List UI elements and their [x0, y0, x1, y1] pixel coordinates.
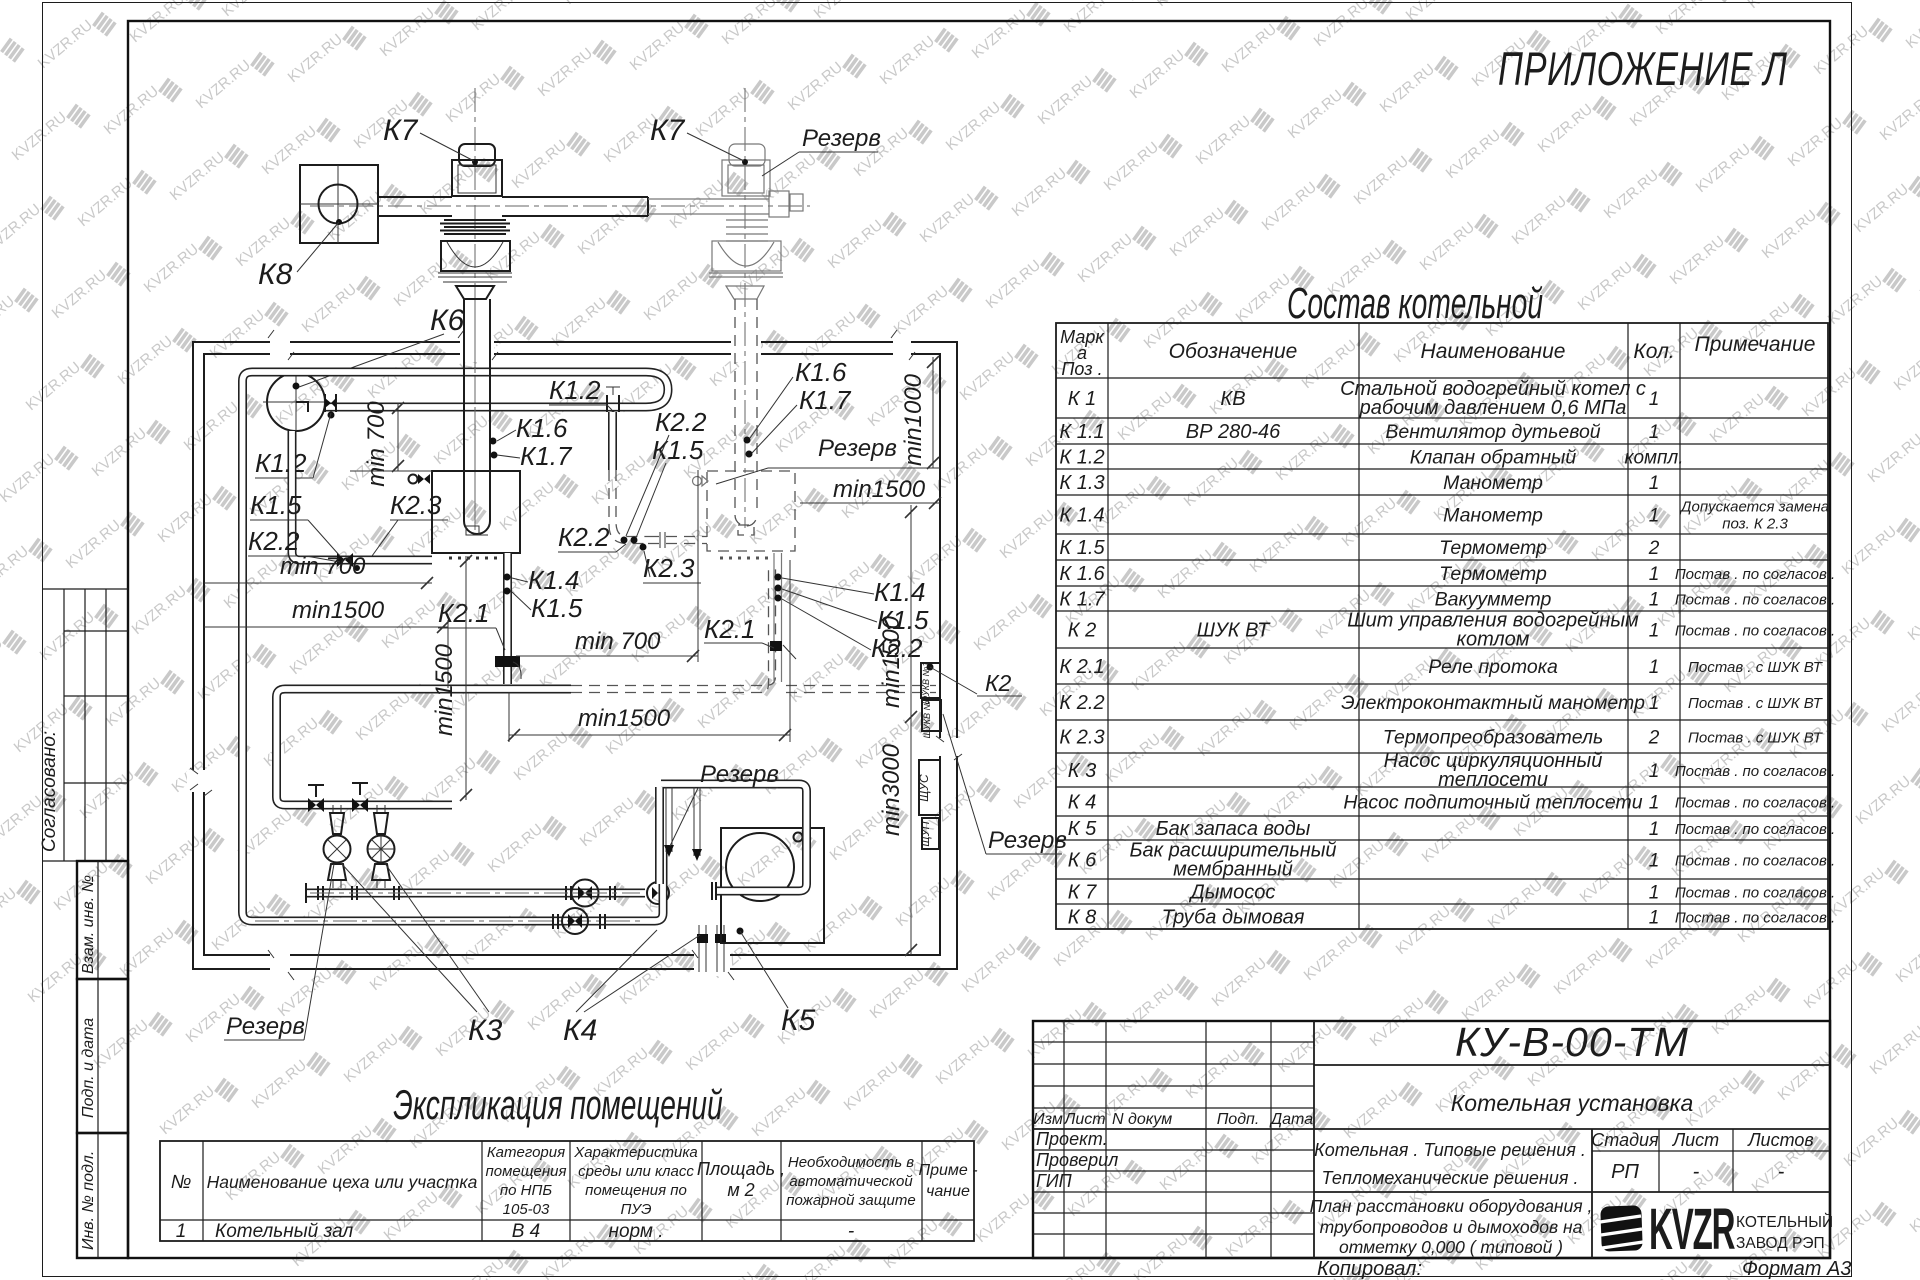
svg-text:1: 1 [1649, 422, 1660, 443]
svg-text:К 1.1: К 1.1 [1059, 421, 1104, 443]
svg-text:К 8: К 8 [1068, 907, 1096, 929]
svg-text:Экспликация помещений: Экспликация помещений [393, 1081, 723, 1128]
svg-text:К2.3: К2.3 [643, 553, 695, 583]
svg-text:min3000: min3000 [878, 743, 905, 836]
svg-text:Постав . по согласов .: Постав . по согласов . [1675, 885, 1835, 902]
svg-text:1: 1 [1649, 564, 1660, 585]
svg-text:Листов: Листов [1747, 1130, 1814, 1150]
svg-text:автоматической: автоматической [789, 1173, 913, 1190]
svg-text:Вентилятор дутьевой: Вентилятор дутьевой [1385, 421, 1600, 443]
svg-text:min1500: min1500 [292, 597, 385, 624]
svg-text:Постав . по согласов .: Постав . по согласов . [1675, 910, 1835, 927]
svg-text:ПРИЛОЖЕНИЕ Л: ПРИЛОЖЕНИЕ Л [1498, 43, 1788, 96]
svg-text:min1500: min1500 [878, 615, 905, 708]
svg-text:К4: К4 [563, 1014, 597, 1047]
svg-text:Подп.: Подп. [1217, 1111, 1260, 1128]
svg-text:К1.4: К1.4 [874, 577, 925, 607]
svg-text:Лист: Лист [1672, 1130, 1719, 1150]
svg-text:1: 1 [1649, 693, 1660, 714]
svg-text:Необходимость в: Необходимость в [788, 1154, 914, 1171]
svg-text:К6: К6 [430, 304, 465, 337]
svg-text:Вакуумметр: Вакуумметр [1435, 589, 1552, 611]
svg-text:ЩУС: ЩУС [917, 774, 931, 802]
svg-text:компл.: компл. [1624, 448, 1683, 469]
svg-text:теплосети: теплосети [1438, 769, 1548, 791]
svg-text:1: 1 [1649, 851, 1660, 872]
svg-text:чание: чание [926, 1183, 970, 1200]
svg-text:Резерв: Резерв [226, 1013, 305, 1040]
svg-text:Примечание: Примечание [1695, 333, 1816, 356]
svg-text:ПУЭ: ПУЭ [620, 1201, 651, 1218]
svg-text:К 7: К 7 [1068, 882, 1097, 904]
svg-text:-: - [848, 1221, 854, 1242]
svg-text:Состав котельной: Состав котельной [1287, 279, 1543, 328]
svg-text:К1.2: К1.2 [549, 375, 601, 405]
svg-text:К 1.7: К 1.7 [1059, 589, 1105, 611]
svg-text:Постав . с ШУК ВТ: Постав . с ШУК ВТ [1688, 659, 1824, 676]
svg-text:К1.6: К1.6 [795, 357, 847, 387]
svg-text:KVZR: KVZR [1649, 1197, 1735, 1262]
svg-text:Обозначение: Обозначение [1169, 340, 1298, 363]
svg-text:помещения: помещения [486, 1163, 567, 1180]
svg-text:ЗАВОД РЭП: ЗАВОД РЭП [1736, 1235, 1825, 1252]
svg-text:Характеристика: Характеристика [573, 1144, 698, 1161]
svg-text:Электроконтактный манометр: Электроконтактный манометр [1341, 692, 1645, 714]
svg-text:К 1.4: К 1.4 [1059, 505, 1104, 527]
svg-text:1: 1 [1649, 657, 1660, 678]
svg-text:поз. К 2.3: поз. К 2.3 [1722, 516, 1788, 533]
svg-text:К1.5: К1.5 [652, 435, 704, 465]
svg-text:К2.2: К2.2 [558, 522, 610, 552]
svg-text:Инв. № подл.: Инв. № подл. [80, 1151, 97, 1250]
svg-text:№: № [171, 1172, 192, 1193]
svg-text:по НПБ: по НПБ [500, 1182, 552, 1199]
svg-text:Кол.: Кол. [1633, 340, 1674, 363]
svg-text:ШУК ВТ: ШУК ВТ [1197, 620, 1272, 642]
svg-text:К 4: К 4 [1068, 792, 1096, 814]
svg-text:1: 1 [1649, 908, 1660, 929]
svg-text:Термопреобразователь: Термопреобразователь [1383, 727, 1603, 749]
svg-text:К3: К3 [468, 1014, 503, 1047]
svg-text:min1500: min1500 [578, 705, 671, 732]
svg-text:К 1: К 1 [1068, 388, 1096, 410]
svg-text:Наименование: Наименование [1421, 340, 1566, 363]
svg-text:Бак запаса воды: Бак запаса воды [1156, 818, 1311, 840]
svg-text:КОТЕЛЬНЫЙ: КОТЕЛЬНЫЙ [1736, 1213, 1833, 1231]
svg-text:Наименование цеха или участка: Наименование цеха или участка [207, 1172, 478, 1192]
svg-text:В 4: В 4 [512, 1221, 541, 1242]
svg-text:ГИП: ГИП [1036, 1171, 1073, 1191]
svg-text:К7: К7 [383, 114, 419, 147]
svg-text:К2: К2 [985, 670, 1012, 696]
svg-text:Формат А3: Формат А3 [1742, 1258, 1851, 1280]
svg-text:отметку 0,000 ( типовой ): отметку 0,000 ( типовой ) [1339, 1237, 1563, 1257]
svg-text:К1.7: К1.7 [799, 385, 852, 415]
svg-text:1: 1 [1649, 506, 1660, 527]
svg-text:КВ: КВ [1220, 388, 1245, 410]
svg-text:К8: К8 [258, 258, 293, 291]
svg-text:Резерв: Резерв [802, 125, 881, 152]
svg-text:105-03: 105-03 [503, 1201, 550, 1218]
svg-text:Поз .: Поз . [1061, 359, 1102, 379]
svg-text:Котельная установка: Котельная установка [1451, 1090, 1694, 1116]
svg-text:Лист: Лист [1063, 1111, 1105, 1128]
svg-text:-: - [1693, 1161, 1700, 1183]
svg-text:1: 1 [1649, 793, 1660, 814]
svg-text:Копировал:: Копировал: [1317, 1258, 1422, 1280]
svg-text:Реле протока: Реле протока [1428, 656, 1558, 678]
svg-text:Согласовано:: Согласовано: [39, 731, 60, 852]
svg-text:Манометр: Манометр [1443, 505, 1543, 527]
svg-text:К1.4: К1.4 [528, 565, 579, 595]
svg-text:1: 1 [1649, 819, 1660, 840]
svg-text:Котельная . Типовые решения .: Котельная . Типовые решения . [1314, 1140, 1586, 1160]
svg-text:КУ-В-00-ТМ: КУ-В-00-ТМ [1455, 1019, 1689, 1065]
svg-text:Резерв: Резерв [700, 761, 779, 788]
svg-text:Постав . по согласов .: Постав . по согласов . [1675, 763, 1835, 780]
svg-text:Термометр: Термометр [1439, 537, 1547, 559]
svg-text:ЩУКВ №2: ЩУКВ №2 [922, 696, 932, 739]
svg-text:min 700: min 700 [363, 401, 390, 487]
svg-text:Тепломеханические решения .: Тепломеханические решения . [1322, 1168, 1579, 1188]
svg-text:Допускается замена: Допускается замена [1679, 499, 1829, 516]
svg-text:1: 1 [1649, 473, 1660, 494]
svg-text:К5: К5 [781, 1004, 816, 1037]
svg-text:м 2: м 2 [727, 1180, 754, 1200]
svg-text:min 700: min 700 [280, 553, 366, 580]
svg-text:Площадь ,: Площадь , [697, 1159, 785, 1179]
svg-text:Труба дымовая: Труба дымовая [1162, 907, 1305, 929]
svg-text:Взам. инв. №: Взам. инв. № [80, 875, 97, 974]
svg-text:Постав . по согласов .: Постав . по согласов . [1675, 592, 1835, 609]
svg-text:Постав . с ШУК ВТ: Постав . с ШУК ВТ [1688, 695, 1824, 712]
svg-text:Постав . по согласов .: Постав . по согласов . [1675, 853, 1835, 870]
svg-text:К1.6: К1.6 [516, 413, 568, 443]
svg-text:К1.2: К1.2 [255, 448, 307, 478]
svg-text:1: 1 [1649, 389, 1660, 410]
svg-text:2: 2 [1648, 728, 1660, 749]
svg-text:К 2.3: К 2.3 [1059, 727, 1104, 749]
svg-text:1: 1 [1649, 761, 1660, 782]
svg-text:Клапан обратный: Клапан обратный [1410, 447, 1577, 469]
svg-text:Дымосос: Дымосос [1189, 882, 1276, 904]
svg-text:min1500: min1500 [431, 643, 458, 736]
svg-text:Резерв: Резерв [988, 827, 1067, 854]
svg-text:Стадия: Стадия [1591, 1130, 1659, 1150]
svg-text:min 700: min 700 [575, 628, 661, 655]
svg-text:1: 1 [1649, 621, 1660, 642]
svg-text:норм .: норм . [609, 1221, 664, 1242]
svg-text:К 2: К 2 [1068, 620, 1096, 642]
svg-text:Манометр: Манометр [1443, 472, 1543, 494]
svg-text:К2.2: К2.2 [248, 526, 300, 556]
svg-text:среды или класс: среды или класс [578, 1163, 694, 1180]
svg-text:Постав . по согласов .: Постав . по согласов . [1675, 795, 1835, 812]
svg-text:-: - [1778, 1161, 1785, 1183]
svg-text:Проверил: Проверил [1036, 1150, 1118, 1170]
svg-text:К2.1: К2.1 [704, 614, 755, 644]
svg-text:Насос подпиточный теплосети: Насос подпиточный теплосети [1343, 792, 1642, 814]
svg-text:Изм: Изм [1033, 1111, 1063, 1128]
svg-text:К7: К7 [650, 114, 686, 147]
svg-text:Приме -: Приме - [918, 1162, 977, 1179]
svg-text:Постав . по согласов .: Постав . по согласов . [1675, 623, 1835, 640]
svg-text:рабочим давлением 0,6 МПа: рабочим давлением 0,6 МПа [1359, 397, 1627, 419]
svg-text:1: 1 [1649, 883, 1660, 904]
svg-text:пожарной защите: пожарной защите [786, 1192, 915, 1209]
svg-text:К1.5: К1.5 [250, 490, 302, 520]
svg-text:К 1.3: К 1.3 [1059, 472, 1104, 494]
svg-text:помещения по: помещения по [585, 1182, 687, 1199]
svg-text:К2.3: К2.3 [390, 490, 442, 520]
svg-text:трубопроводов и дымоходов на: трубопроводов и дымоходов на [1320, 1217, 1583, 1237]
svg-text:ЩУП: ЩУП [920, 821, 932, 846]
svg-text:ВР 280-46: ВР 280-46 [1186, 421, 1281, 443]
svg-text:РП: РП [1611, 1161, 1639, 1183]
svg-text:К 3: К 3 [1068, 760, 1096, 782]
svg-text:мембранный: мембранный [1173, 859, 1293, 881]
svg-text:Постав . с ШУК ВТ: Постав . с ШУК ВТ [1688, 730, 1824, 747]
svg-text:Термометр: Термометр [1439, 563, 1547, 585]
svg-text:К 6: К 6 [1068, 850, 1097, 872]
svg-text:котлом: котлом [1457, 629, 1530, 651]
svg-text:1: 1 [1649, 590, 1660, 611]
svg-text:Категория: Категория [487, 1144, 565, 1161]
svg-text:1: 1 [176, 1221, 187, 1242]
svg-text:К 1.5: К 1.5 [1059, 537, 1105, 559]
svg-text:План расстановки оборудования: План расстановки оборудования , [1310, 1196, 1593, 1216]
svg-text:min1500: min1500 [833, 476, 926, 503]
svg-text:К 1.6: К 1.6 [1059, 563, 1105, 585]
svg-text:К 1.2: К 1.2 [1059, 447, 1104, 469]
svg-text:К1.7: К1.7 [520, 441, 573, 471]
svg-text:Дата: Дата [1269, 1111, 1313, 1128]
svg-text:Резерв: Резерв [818, 435, 897, 462]
svg-text:К 2.1: К 2.1 [1059, 656, 1104, 678]
svg-text:2: 2 [1648, 538, 1660, 559]
svg-text:К1.5: К1.5 [531, 593, 583, 623]
svg-text:Подп. и дата: Подп. и дата [80, 1018, 97, 1118]
svg-text:Проект.: Проект. [1036, 1129, 1108, 1149]
svg-text:Котельный зал: Котельный зал [215, 1221, 353, 1242]
svg-text:min1000: min1000 [900, 373, 927, 466]
svg-text:К2.2: К2.2 [655, 407, 707, 437]
svg-text:К 2.2: К 2.2 [1059, 692, 1104, 714]
svg-text:Постав . по согласов .: Постав . по согласов . [1675, 821, 1835, 838]
svg-text:Постав . по согласов .: Постав . по согласов . [1675, 566, 1835, 583]
svg-text:К 5: К 5 [1068, 818, 1097, 840]
svg-text:N докум: N докум [1112, 1111, 1172, 1128]
